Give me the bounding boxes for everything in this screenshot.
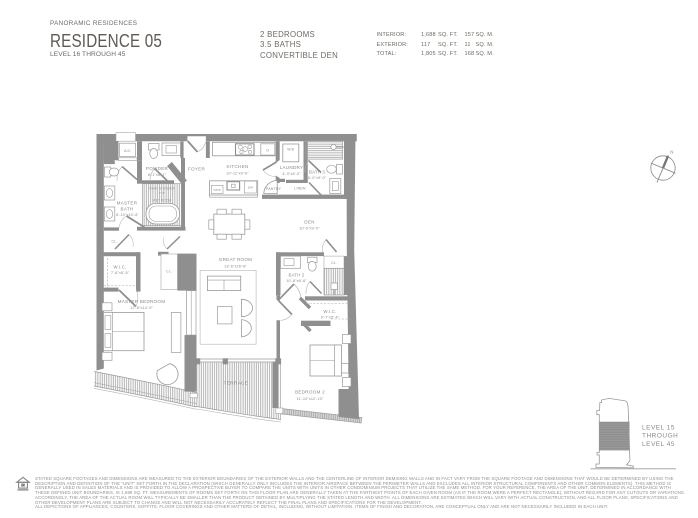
svg-text:DEN: DEN: [304, 220, 314, 225]
svg-text:CL.: CL.: [166, 270, 172, 274]
svg-text:W.I.C.: W.I.C.: [324, 309, 337, 314]
svg-text:N: N: [670, 150, 673, 155]
svg-text:10'-0"x9'-0": 10'-0"x9'-0": [299, 227, 320, 231]
svg-text:KITCHEN: KITCHEN: [227, 164, 249, 169]
svg-text:MASTER BEDROOM: MASTER BEDROOM: [118, 299, 166, 304]
svg-text:4'-0"x6'-0": 4'-0"x6'-0": [282, 172, 301, 176]
svg-text:6'-0"x9'-0": 6'-0"x9'-0": [308, 176, 327, 180]
svg-text:BEDROOM 2: BEDROOM 2: [295, 390, 325, 395]
svg-text:LEVEL 15: LEVEL 15: [642, 425, 675, 432]
svg-text:WET ROOM: WET ROOM: [153, 199, 172, 203]
svg-text:12'-8"x14'-9": 12'-8"x14'-9": [130, 306, 153, 310]
svg-text:6'-7"x5'-4": 6'-7"x5'-4": [321, 316, 340, 320]
svg-text:W.I.C.: W.I.C.: [114, 264, 127, 269]
svg-text:7'x5': 7'x5': [159, 191, 166, 195]
svg-text:O: O: [266, 148, 269, 152]
svg-text:CL.: CL.: [331, 261, 337, 265]
svg-text:W/D: W/D: [287, 148, 294, 152]
svg-text:A/C: A/C: [124, 149, 131, 153]
svg-text:SINK: SINK: [213, 188, 220, 192]
svg-text:PANTRY: PANTRY: [266, 187, 282, 191]
svg-text:MASTER: MASTER: [117, 201, 138, 206]
svg-text:GREAT ROOM: GREAT ROOM: [219, 257, 252, 262]
svg-text:THROUGH: THROUGH: [642, 433, 678, 440]
svg-text:DW: DW: [248, 186, 253, 190]
svg-text:10'-8"x6'-6": 10'-8"x6'-6": [286, 279, 307, 283]
svg-text:FOYER: FOYER: [188, 166, 206, 171]
svg-text:LINEN: LINEN: [294, 187, 306, 191]
svg-text:11'-10"x12'-10": 11'-10"x12'-10": [297, 397, 325, 401]
svg-text:TERRACE: TERRACE: [224, 381, 249, 386]
svg-text:BATH 3: BATH 3: [309, 170, 325, 175]
svg-text:BATH: BATH: [121, 207, 134, 212]
svg-text:13'-6"x26'-8": 13'-6"x26'-8": [224, 264, 247, 268]
svg-text:BATH 2: BATH 2: [289, 272, 305, 277]
svg-text:LEVEL 45: LEVEL 45: [642, 441, 675, 448]
svg-text:LAUNDRY: LAUNDRY: [280, 165, 304, 170]
svg-text:7'-8"x5'-8": 7'-8"x5'-8": [111, 271, 130, 275]
svg-text:10'-11"x9'-6": 10'-11"x9'-6": [226, 171, 249, 175]
svg-text:CL.: CL.: [112, 240, 118, 244]
